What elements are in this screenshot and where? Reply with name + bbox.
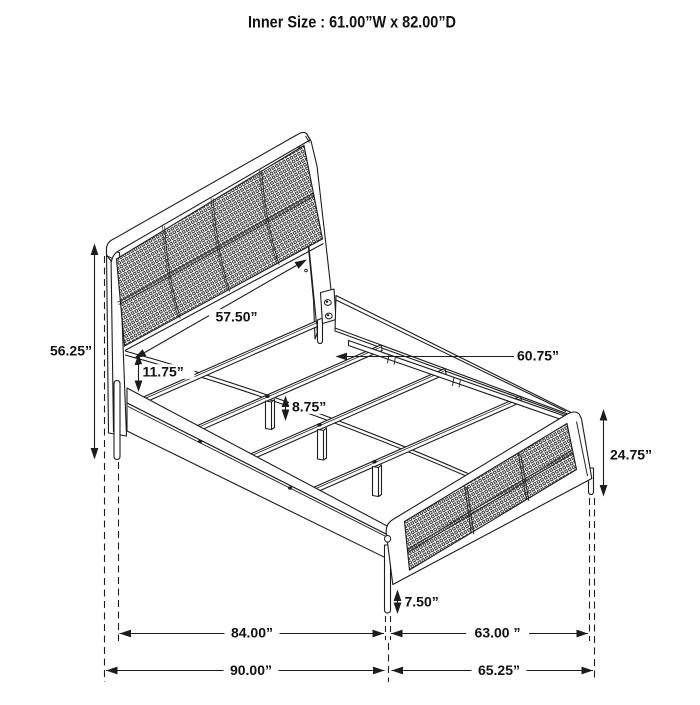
svg-text:60.75”: 60.75” [517, 348, 559, 364]
svg-text:11.75”: 11.75” [143, 364, 184, 380]
svg-text:90.00”: 90.00” [230, 662, 272, 678]
svg-text:65.25”: 65.25” [478, 662, 520, 678]
svg-text:24.75”: 24.75” [610, 447, 652, 463]
svg-text:84.00”: 84.00” [231, 625, 273, 641]
svg-text:56.25”: 56.25” [50, 343, 92, 359]
svg-text:57.50”: 57.50” [215, 309, 257, 325]
svg-text:7.50”: 7.50” [405, 594, 439, 610]
svg-text:Inner Size : 61.00”W x 82.00”D: Inner Size : 61.00”W x 82.00”D [248, 13, 456, 32]
svg-text:8.75”: 8.75” [292, 399, 326, 415]
svg-text:63.00 ”: 63.00 ” [475, 625, 521, 641]
